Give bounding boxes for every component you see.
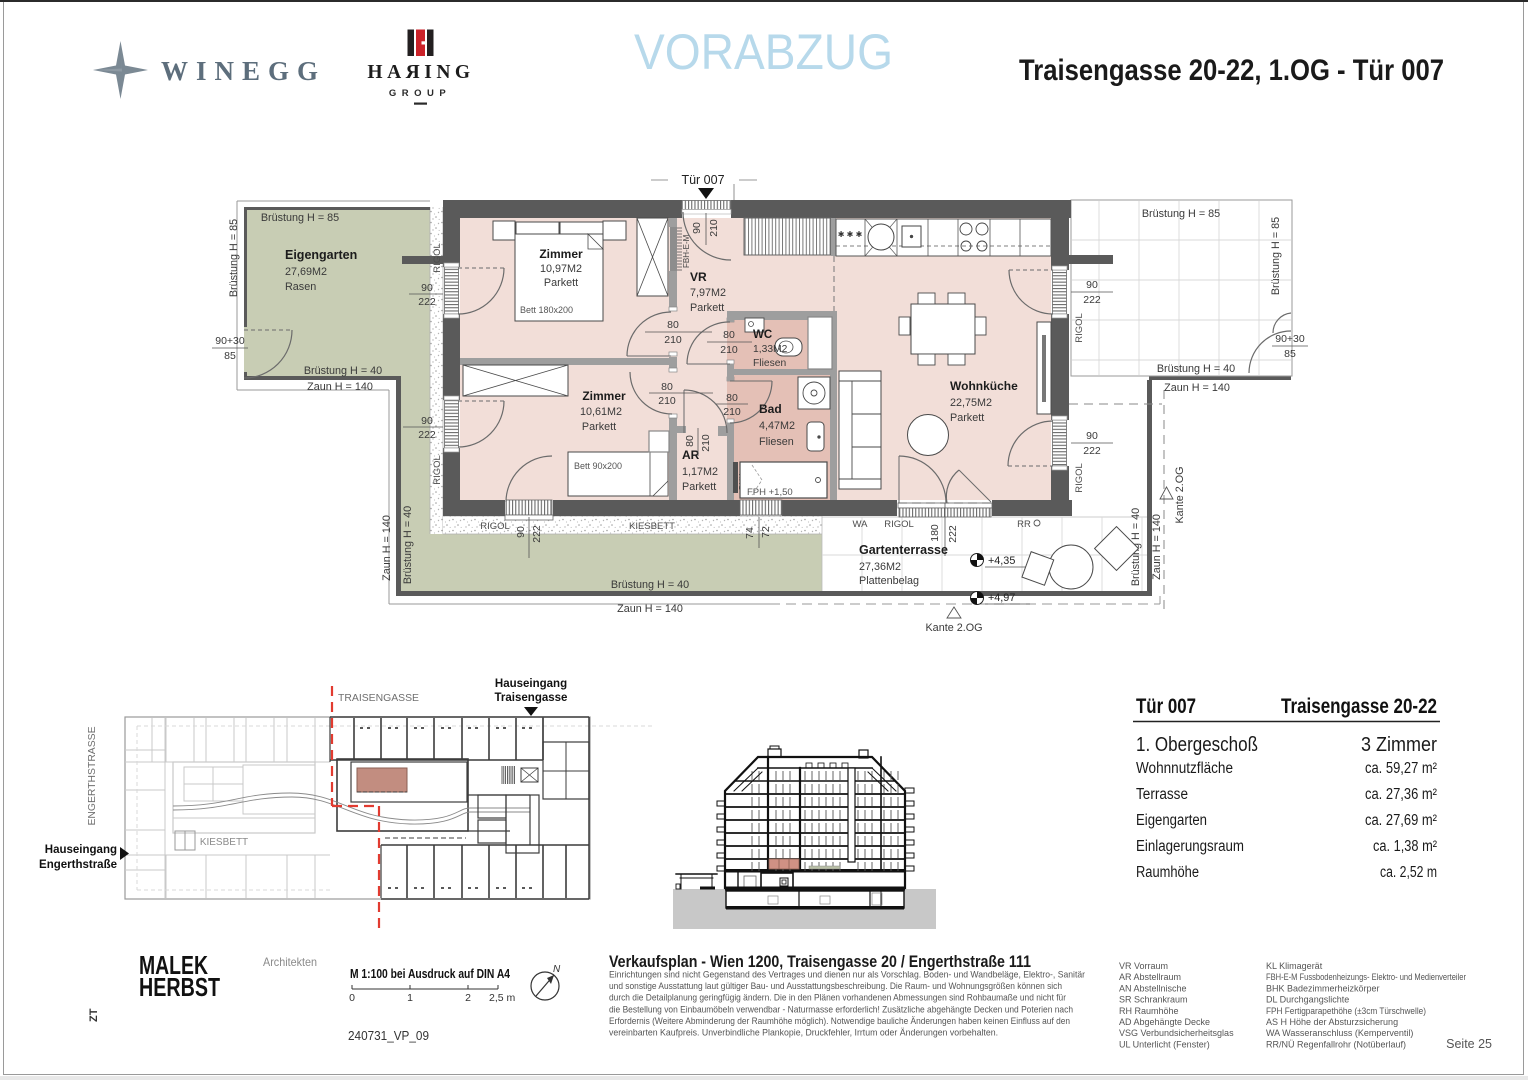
svg-text:80: 80: [684, 435, 696, 447]
svg-text:Eigengarten: Eigengarten: [1136, 812, 1207, 829]
svg-text:WA: WA: [853, 519, 869, 530]
svg-text:222: 222: [531, 525, 543, 543]
svg-text:RIGOL: RIGOL: [1074, 463, 1085, 493]
svg-text:KIESBETT: KIESBETT: [200, 837, 248, 848]
svg-text:210: 210: [708, 219, 720, 237]
svg-text:+4,35: +4,35: [988, 555, 1015, 567]
svg-text:UL Unterlicht (Fenster): UL Unterlicht (Fenster): [1119, 1039, 1210, 1049]
svg-text:85: 85: [1284, 348, 1296, 360]
svg-text:N: N: [553, 964, 561, 975]
svg-text:Zaun H = 140: Zaun H = 140: [1151, 514, 1163, 580]
svg-text:80: 80: [667, 319, 679, 331]
svg-text:Tür 007: Tür 007: [1136, 695, 1196, 718]
svg-text:7,97M2: 7,97M2: [690, 287, 726, 299]
svg-text:74: 74: [744, 527, 756, 539]
svg-text:Traisengasse 20-22, 1.OG - Tür: Traisengasse 20-22, 1.OG - Tür 007: [1019, 54, 1444, 87]
svg-text:Brüstung H = 85: Brüstung H = 85: [261, 212, 339, 224]
svg-text:Hauseingang: Hauseingang: [495, 678, 567, 690]
svg-text:Kante 2.OG: Kante 2.OG: [1174, 466, 1186, 523]
svg-text:KIESBETT: KIESBETT: [629, 521, 675, 532]
svg-text:10,97M2: 10,97M2: [540, 263, 582, 275]
svg-text:VSG Verbundsicherheitsglas: VSG Verbundsicherheitsglas: [1119, 1028, 1234, 1038]
svg-text:Erfordernis (Weitere Abminderu: Erfordernis (Weitere Abminderung der Rau…: [609, 1016, 1070, 1026]
svg-text:Brüstung H = 85: Brüstung H = 85: [1270, 217, 1282, 295]
svg-text:4,47M2: 4,47M2: [759, 420, 795, 432]
svg-text:Verkaufsplan - Wien 1200, Trai: Verkaufsplan - Wien 1200, Traisengasse 2…: [609, 953, 1031, 971]
svg-text:222: 222: [1083, 294, 1101, 306]
svg-text:210: 210: [658, 395, 676, 407]
svg-text:Brüstung H = 40: Brüstung H = 40: [1157, 363, 1235, 375]
svg-text:AR: AR: [682, 448, 700, 462]
svg-text:3 Zimmer: 3 Zimmer: [1361, 734, 1437, 756]
svg-text:SR Schrankraum: SR Schrankraum: [1119, 995, 1188, 1005]
svg-text:RIGOL: RIGOL: [1074, 313, 1085, 343]
svg-text:ca. 1,38 m²: ca. 1,38 m²: [1373, 838, 1437, 855]
svg-text:Parkett: Parkett: [582, 421, 616, 433]
svg-text:210: 210: [664, 334, 682, 346]
svg-text:FBH-E-M Fussbodenheizungs- Ele: FBH-E-M Fussbodenheizungs- Elektro- und …: [1266, 972, 1466, 982]
svg-text:M 1:100 bei Ausdruck auf DIN A: M 1:100 bei Ausdruck auf DIN A4: [350, 966, 511, 981]
svg-text:Zaun H = 140: Zaun H = 140: [617, 603, 683, 615]
svg-text:Rasen: Rasen: [285, 281, 316, 293]
svg-text:RIGOL: RIGOL: [432, 243, 443, 273]
svg-text:HAЯING: HAЯING: [367, 62, 474, 83]
svg-text:Zaun H = 140: Zaun H = 140: [1164, 382, 1230, 394]
svg-text:✱ ✱ ✱: ✱ ✱ ✱: [838, 230, 863, 239]
svg-text:RIGOL: RIGOL: [432, 455, 443, 485]
svg-text:durch die Detailplanung gering: durch die Detailplanung geringfügig ände…: [609, 993, 1066, 1003]
svg-text:1,17M2: 1,17M2: [682, 466, 718, 478]
svg-text:ZT: ZT: [88, 1008, 100, 1022]
svg-text:90: 90: [1086, 279, 1098, 291]
svg-text:ca. 2,52 m: ca. 2,52 m: [1380, 864, 1437, 881]
svg-text:Plattenbelag: Plattenbelag: [859, 575, 919, 587]
svg-text:Zimmer: Zimmer: [539, 247, 583, 261]
svg-text:ca. 59,27 m²: ca. 59,27 m²: [1365, 760, 1437, 777]
svg-text:Engerthstraße: Engerthstraße: [39, 859, 117, 871]
svg-text:TRAISENGASSE: TRAISENGASSE: [338, 693, 419, 704]
svg-text:RIGOL: RIGOL: [884, 519, 914, 530]
svg-text:90+30: 90+30: [215, 335, 245, 347]
svg-text:Traisengasse: Traisengasse: [495, 692, 568, 704]
svg-text:Parkett: Parkett: [682, 481, 716, 493]
svg-text:90: 90: [1086, 430, 1098, 442]
svg-text:Bett 180x200: Bett 180x200: [520, 305, 573, 315]
svg-text:vereinbarten Kaufpreis. Unverb: vereinbarten Kaufpreis. Unverbindliche P…: [609, 1028, 998, 1038]
svg-text:240731_VP_09: 240731_VP_09: [348, 1028, 429, 1043]
svg-text:22,75M2: 22,75M2: [950, 397, 992, 409]
svg-text:AS H Höhe der Absturzsicherung: AS H Höhe der Absturzsicherung: [1266, 1017, 1398, 1027]
svg-text:0: 0: [349, 992, 355, 1004]
svg-text:Wohnküche: Wohnküche: [950, 379, 1018, 393]
svg-text:Parkett: Parkett: [690, 302, 724, 314]
svg-text:1,33M2: 1,33M2: [753, 344, 788, 355]
svg-text:Brüstung H = 85: Brüstung H = 85: [228, 219, 240, 297]
svg-text:222: 222: [418, 429, 436, 441]
svg-text:ca. 27,36 m²: ca. 27,36 m²: [1365, 786, 1437, 803]
svg-text:RR/NÜ Regenfallrohr (Notüberla: RR/NÜ Regenfallrohr (Notüberlauf): [1266, 1039, 1406, 1049]
svg-text:Raumhöhe: Raumhöhe: [1136, 864, 1199, 881]
svg-text:BHK Badezimmerheizkörper: BHK Badezimmerheizkörper: [1266, 983, 1380, 993]
svg-text:FPH Fertigparapethöhe (±3cm Tü: FPH Fertigparapethöhe (±3cm Türschwelle): [1266, 1006, 1426, 1016]
svg-text:27,69M2: 27,69M2: [285, 266, 327, 278]
svg-text:90: 90: [515, 526, 527, 538]
svg-text:Zimmer: Zimmer: [582, 389, 626, 403]
svg-text:Parkett: Parkett: [544, 277, 578, 289]
svg-text:+4,97: +4,97: [988, 592, 1015, 604]
svg-text:Tür 007: Tür 007: [681, 173, 724, 187]
svg-text:90+30: 90+30: [1275, 333, 1305, 345]
svg-text:222: 222: [947, 525, 959, 543]
svg-text:Einrichtungen sind nicht Gegen: Einrichtungen sind nicht Gegenstand des …: [609, 970, 1085, 980]
svg-text:90: 90: [421, 282, 433, 294]
svg-text:Terrasse: Terrasse: [1136, 786, 1188, 803]
svg-text:KL Klimagerät: KL Klimagerät: [1266, 961, 1323, 971]
svg-text:2,5 m: 2,5 m: [489, 992, 516, 1004]
svg-text:210: 210: [720, 344, 738, 356]
svg-text:Zaun H = 140: Zaun H = 140: [381, 515, 393, 581]
svg-text:Fliesen: Fliesen: [759, 436, 794, 448]
svg-text:GROUP: GROUP: [389, 88, 451, 99]
svg-text:72: 72: [760, 526, 772, 538]
svg-text:DL Durchgangslichte: DL Durchgangslichte: [1266, 995, 1349, 1005]
svg-text:27,36M2: 27,36M2: [859, 561, 901, 573]
svg-text:210: 210: [700, 434, 712, 452]
svg-text:1: 1: [407, 992, 413, 1004]
svg-text:Parkett: Parkett: [950, 412, 984, 424]
svg-text:Zaun H = 140: Zaun H = 140: [307, 381, 373, 393]
svg-text:AR Abstellraum: AR Abstellraum: [1119, 972, 1181, 982]
svg-text:80: 80: [726, 392, 738, 404]
svg-text:222: 222: [1083, 445, 1101, 457]
svg-text:Wohnnutzfläche: Wohnnutzfläche: [1136, 760, 1233, 777]
svg-text:RH Raumhöhe: RH Raumhöhe: [1119, 1006, 1179, 1016]
svg-text:VR Vorraum: VR Vorraum: [1119, 961, 1168, 971]
svg-text:AN Abstellnische: AN Abstellnische: [1119, 983, 1187, 993]
svg-text:Einlagerungsraum: Einlagerungsraum: [1136, 838, 1244, 855]
svg-text:HERBST: HERBST: [139, 972, 220, 1002]
svg-text:und sonstige Ausstattung laut: und sonstige Ausstattung laut gültiger B…: [609, 981, 1062, 991]
svg-text:ca. 27,69 m²: ca. 27,69 m²: [1365, 812, 1437, 829]
svg-text:RIGOL: RIGOL: [480, 521, 510, 532]
svg-text:Fliesen: Fliesen: [753, 358, 786, 369]
svg-text:85: 85: [224, 350, 236, 362]
svg-text:Gartenterrasse: Gartenterrasse: [859, 543, 948, 557]
svg-text:2: 2: [465, 992, 471, 1004]
svg-text:10,61M2: 10,61M2: [580, 406, 622, 418]
svg-text:VR: VR: [690, 270, 707, 284]
svg-text:AD Abgehängte Decke: AD Abgehängte Decke: [1119, 1017, 1210, 1027]
svg-text:FPH +1,50: FPH +1,50: [747, 487, 793, 498]
svg-text:Bett 90x200: Bett 90x200: [574, 461, 622, 471]
svg-text:90: 90: [691, 222, 703, 234]
svg-text:Brüstung H = 40: Brüstung H = 40: [304, 365, 382, 377]
svg-text:die Bestellung von Einbaumöbel: die Bestellung von Einbaumöbeln verwendb…: [609, 1004, 1073, 1014]
svg-text:Brüstung H = 40: Brüstung H = 40: [611, 579, 689, 591]
svg-text:Hauseingang: Hauseingang: [45, 844, 117, 856]
svg-text:Seite 25: Seite 25: [1446, 1037, 1492, 1051]
svg-text:222: 222: [418, 296, 436, 308]
svg-text:Kante 2.OG: Kante 2.OG: [925, 622, 982, 634]
svg-text:90: 90: [421, 415, 433, 427]
svg-text:Bad: Bad: [759, 402, 782, 416]
svg-text:ENGERTHSTRASSE: ENGERTHSTRASSE: [87, 726, 98, 825]
svg-text:VORABZUG: VORABZUG: [634, 24, 893, 80]
svg-text:RR: RR: [1017, 519, 1031, 530]
svg-text:1. Obergeschoß: 1. Obergeschoß: [1136, 734, 1258, 756]
svg-text:210: 210: [723, 406, 741, 418]
svg-text:FBH-E-M: FBH-E-M: [682, 234, 691, 268]
svg-text:Architekten: Architekten: [263, 955, 317, 969]
svg-text:180: 180: [929, 524, 941, 542]
svg-text:Brüstung H = 85: Brüstung H = 85: [1142, 208, 1220, 220]
svg-text:80: 80: [661, 381, 673, 393]
svg-text:80: 80: [723, 329, 735, 341]
svg-text:Eigengarten: Eigengarten: [285, 248, 357, 262]
svg-text:Traisengasse 20-22: Traisengasse 20-22: [1281, 695, 1437, 718]
svg-text:Brüstung H = 40: Brüstung H = 40: [402, 506, 414, 584]
svg-text:WINEGG: WINEGG: [161, 56, 326, 86]
svg-text:WC: WC: [753, 329, 772, 341]
svg-text:WA Wasseranschluss (Kempervent: WA Wasseranschluss (Kemperventil): [1266, 1028, 1413, 1038]
